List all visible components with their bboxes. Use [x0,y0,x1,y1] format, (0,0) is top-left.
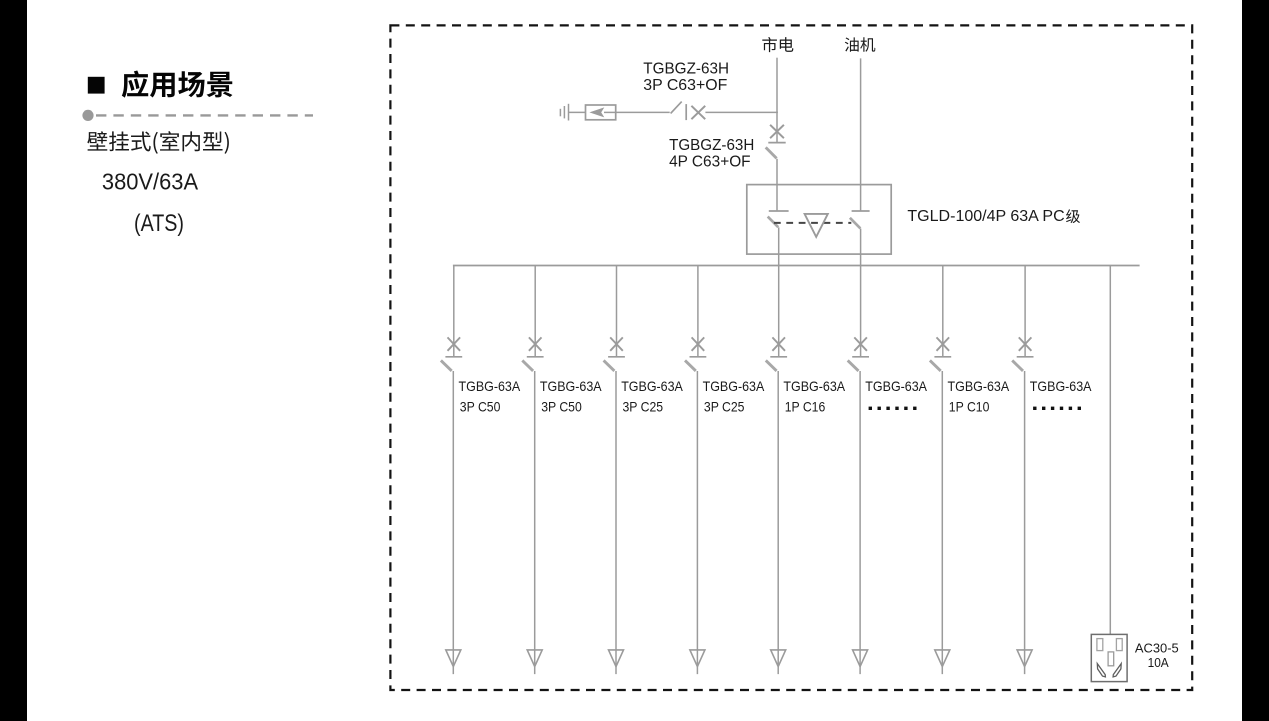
svg-text:(ATS): (ATS) [134,210,184,237]
svg-text:TGBG-63A: TGBG-63A [1030,378,1092,394]
svg-text:TGBG-63A: TGBG-63A [621,378,683,394]
svg-text:TGBGZ-63H: TGBGZ-63H [669,137,754,154]
svg-text:TGBG-63A: TGBG-63A [783,378,845,394]
svg-text:10A: 10A [1148,655,1169,670]
svg-text:TGLD-100/4P 63A PC: TGLD-100/4P 63A PC [907,208,1064,225]
svg-text:TGBGZ-63H: TGBGZ-63H [643,60,729,77]
svg-text:4P C63+OF: 4P C63+OF [669,154,751,171]
svg-text:1P C16: 1P C16 [785,399,826,415]
svg-text:3P C50: 3P C50 [460,399,501,415]
svg-text:380V/63A: 380V/63A [102,168,199,194]
svg-text:TGBG-63A: TGBG-63A [948,378,1010,394]
svg-text:3P C50: 3P C50 [541,399,582,415]
svg-text:1P C10: 1P C10 [949,399,990,415]
svg-text:AC30-5: AC30-5 [1135,640,1179,655]
svg-text:TGBG-63A: TGBG-63A [459,378,521,394]
svg-text:3P C25: 3P C25 [623,399,664,415]
svg-text:TGBG-63A: TGBG-63A [703,378,765,394]
svg-text:TGBG-63A: TGBG-63A [540,378,602,394]
svg-text:3P C63+OF: 3P C63+OF [643,77,727,94]
svg-text:TGBG-63A: TGBG-63A [865,378,927,394]
svg-text:3P C25: 3P C25 [704,399,745,415]
